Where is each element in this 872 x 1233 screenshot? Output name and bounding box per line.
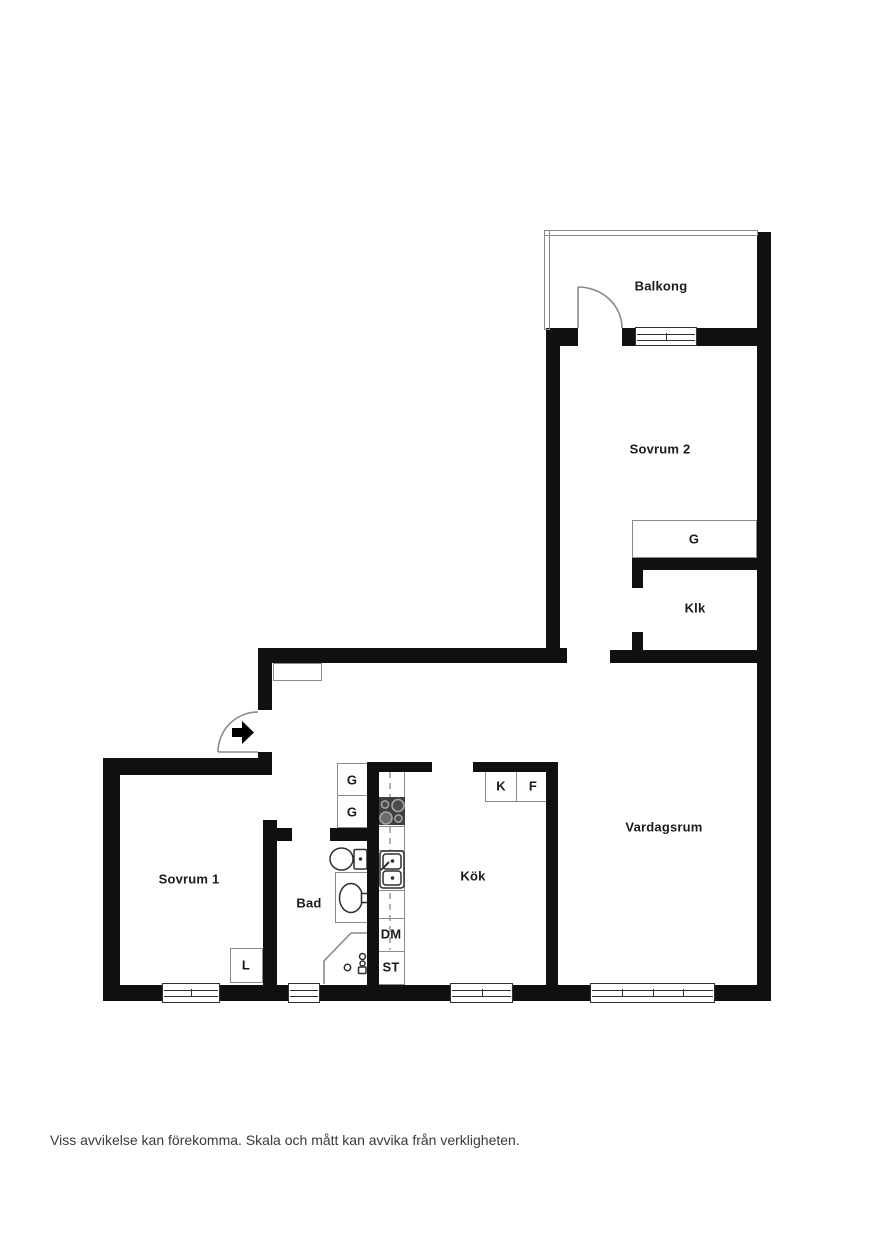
wall-kitchen-livingroom-divider <box>546 762 558 985</box>
label-tall-cabinet: ST <box>382 960 399 975</box>
label-fridge: K <box>496 779 506 794</box>
disclaimer-text: Viss avvikelse kan förekomma. Skala och … <box>50 1132 520 1148</box>
balcony-door-arc <box>578 287 622 328</box>
floor-plan: Balkong Sovrum 2 G Klk Vardagsrum Kök So… <box>0 0 872 1233</box>
label-freezer: F <box>529 779 537 794</box>
wall-bathroom-north-b <box>330 828 379 841</box>
wall-bedroom1-east <box>263 820 277 1001</box>
label-linen-closet: L <box>242 958 250 973</box>
label-hall-wardrobe-1: G <box>347 773 357 788</box>
window-bathroom <box>288 983 320 1003</box>
room-label-bedroom1: Sovrum 1 <box>159 872 220 887</box>
wall-entry-lower <box>258 752 272 775</box>
room-label-bathroom: Bad <box>296 896 321 911</box>
window-bedroom2 <box>635 327 697 346</box>
label-hall-wardrobe-2: G <box>347 805 357 820</box>
room-label-kitchen: Kök <box>460 869 485 884</box>
washbasin-icon <box>340 884 369 913</box>
window-bedroom1 <box>162 983 220 1003</box>
wall-hall-north <box>258 648 567 663</box>
wall-bedroom2-north-b <box>622 328 635 346</box>
wall-klk-west-upper <box>632 570 643 588</box>
balcony-rim-west <box>544 230 550 330</box>
room-label-livingroom: Vardagsrum <box>625 820 702 835</box>
room-label-balcony: Balkong <box>635 279 688 294</box>
room-label-bedroom2: Sovrum 2 <box>630 442 691 457</box>
kitchen-sink-icon <box>380 851 404 888</box>
label-dishwasher: DM <box>381 927 402 942</box>
room-label-klk: Klk <box>685 601 706 616</box>
wall-klk-west-lower <box>632 632 643 663</box>
wall-bathroom-east <box>367 762 379 1001</box>
wall-klk-north <box>632 558 757 570</box>
fixtures-layer <box>0 0 872 1233</box>
balcony-rim-north <box>544 230 758 236</box>
toilet-icon <box>330 848 367 870</box>
wall-bedroom1-north <box>103 758 270 775</box>
wall-east <box>757 232 771 1001</box>
shower-icon <box>324 933 367 984</box>
label-wardrobe-bedroom2: G <box>689 532 699 547</box>
wall-bedroom2-west <box>546 328 560 648</box>
window-kitchen <box>450 983 513 1003</box>
wall-bedroom2-north-a <box>546 328 578 346</box>
wall-bedroom2-north-c <box>697 328 757 346</box>
window-livingroom <box>590 983 715 1003</box>
entry-direction-arrow-icon <box>232 721 254 744</box>
wall-west <box>103 758 120 1001</box>
stove-icon <box>378 797 405 825</box>
